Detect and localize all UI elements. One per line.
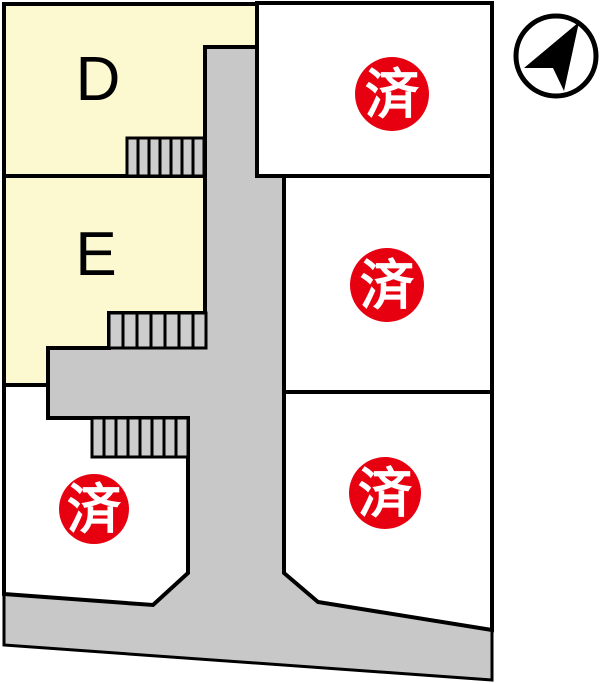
sold-badge-left-bottom: 済 xyxy=(59,474,129,544)
sold-badge-text: 済 xyxy=(365,65,420,125)
sold-badge-right-middle: 済 xyxy=(350,248,424,322)
sold-badge-text: 済 xyxy=(67,480,122,540)
lot-map: D E 済 済 済 済 xyxy=(0,0,600,684)
sold-badge-right-top: 済 xyxy=(355,57,429,131)
stairs-middle xyxy=(109,313,206,348)
stairs-upper xyxy=(127,138,204,176)
stairs-lower xyxy=(92,418,188,457)
sold-badge-right-bottom: 済 xyxy=(349,457,421,529)
north-arrow-icon xyxy=(516,16,596,96)
lot-e-label: E xyxy=(75,220,116,289)
lot-d-label: D xyxy=(76,45,121,114)
sold-badge-text: 済 xyxy=(360,256,415,316)
stairs-lower-treads xyxy=(104,418,176,457)
sold-badge-text: 済 xyxy=(358,464,413,524)
